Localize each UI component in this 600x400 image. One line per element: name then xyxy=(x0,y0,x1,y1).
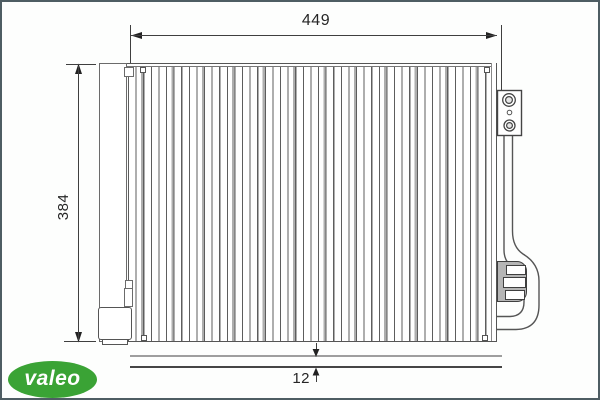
pipes-and-arrows-layer xyxy=(0,0,600,400)
connector-slot-1 xyxy=(506,265,526,275)
dim-thickness-tail-top xyxy=(316,343,317,349)
dim-height-line xyxy=(78,66,79,340)
dim-height-ext-bottom xyxy=(64,341,96,342)
dim-height-ext-top xyxy=(66,64,96,65)
dim-thickness-tail-bottom xyxy=(316,375,317,382)
dim-height-label: 384 xyxy=(55,177,73,237)
refrigerant-fitting-block xyxy=(498,91,522,136)
fitting-bolt-hole-icon xyxy=(507,110,512,115)
dim-thickness-label: 12 xyxy=(284,370,310,388)
connector-slot-3 xyxy=(505,290,525,300)
valeo-logo-text: valeo xyxy=(24,367,80,391)
arrowhead-thickness-down-icon xyxy=(313,349,320,357)
dim-width-line xyxy=(131,35,497,36)
dim-width-label: 449 xyxy=(281,12,351,30)
dim-width-ext-left xyxy=(130,25,131,63)
dim-width-ext-right xyxy=(501,25,502,90)
technical-drawing-condenser: 449 384 12 valeo xyxy=(0,0,600,400)
connector-slot-2 xyxy=(503,277,526,288)
valeo-logo: valeo xyxy=(8,361,97,398)
